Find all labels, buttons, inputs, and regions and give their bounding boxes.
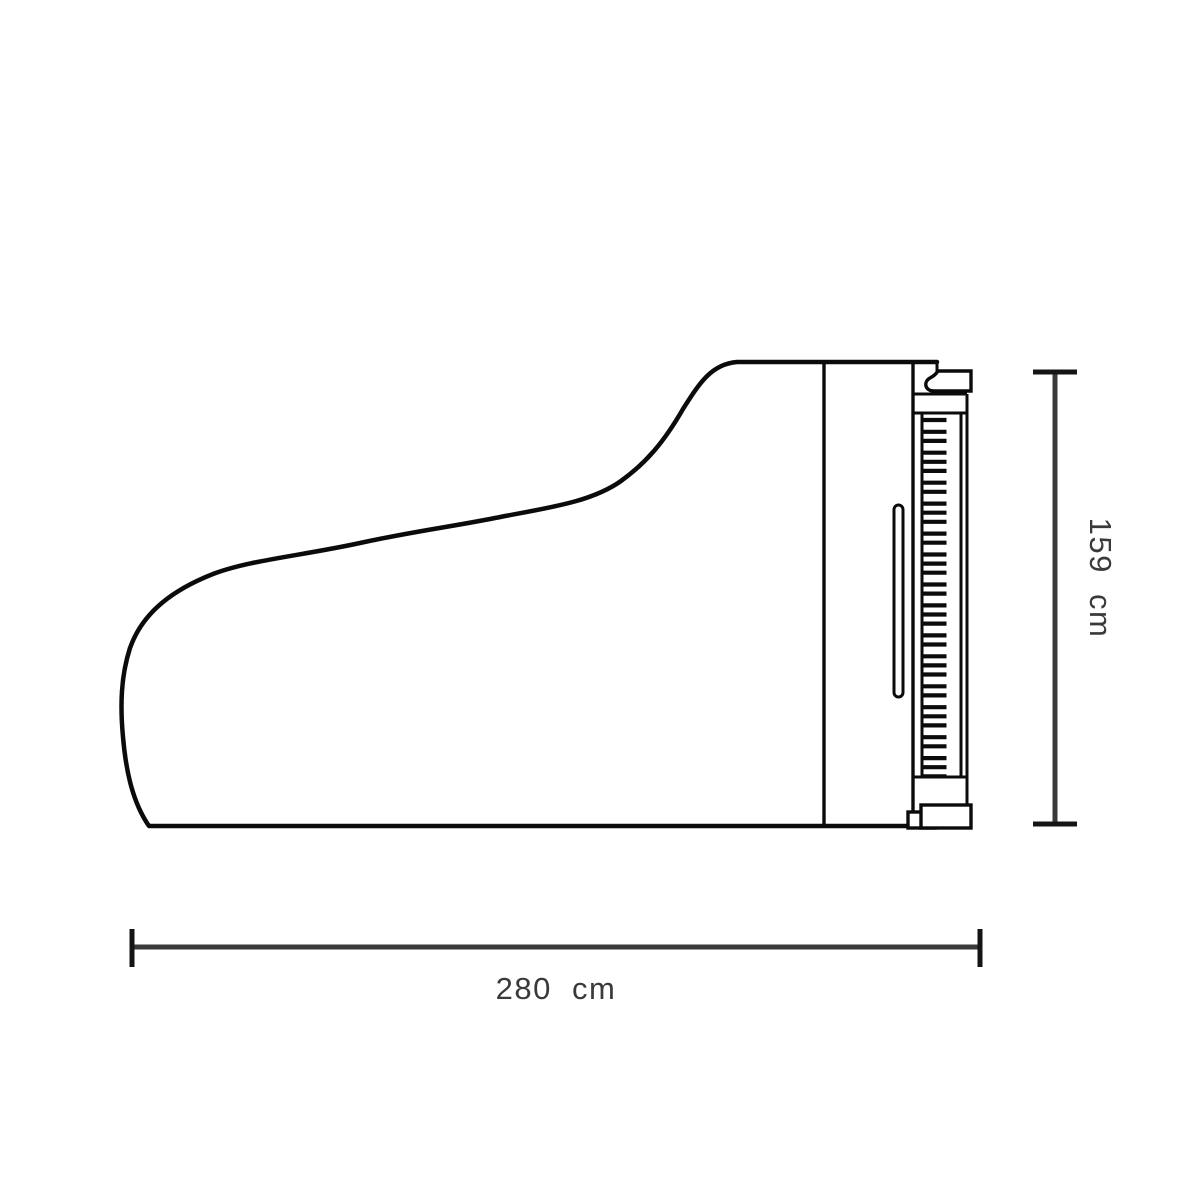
height-dimension: [1033, 372, 1077, 824]
music-desk-slot: [894, 505, 903, 697]
height-dimension-label: 159 cm: [1082, 518, 1118, 639]
width-dimension-label: 280 cm: [496, 971, 617, 1007]
cheek-block-bottom: [921, 805, 971, 828]
piano-body: [121, 362, 937, 826]
piano-body-outline: [121, 362, 937, 826]
keyboard: [908, 362, 971, 828]
piano-dimension-diagram: 159 cm 280 cm: [0, 0, 1181, 1181]
cheek-block-top: [926, 371, 971, 391]
width-dimension: [132, 929, 980, 967]
black-keys: [923, 420, 947, 776]
